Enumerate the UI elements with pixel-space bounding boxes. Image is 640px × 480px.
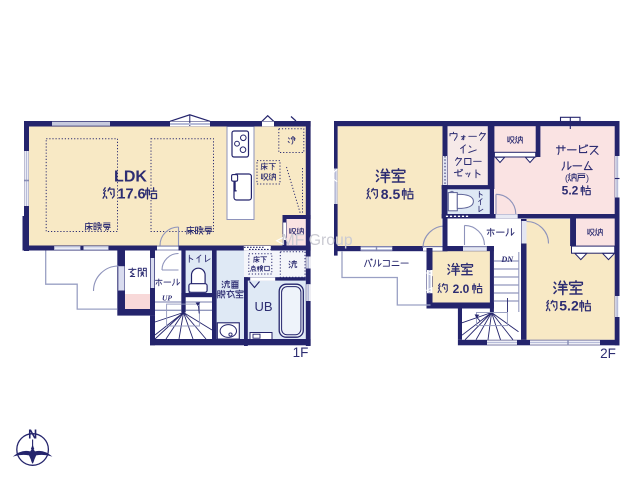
svg-text:2.0: 2.0 <box>453 282 470 296</box>
svg-text:LDK: LDK <box>114 169 147 186</box>
svg-text:N: N <box>28 428 37 442</box>
svg-text:(: ( <box>565 173 568 183</box>
svg-text:5.2: 5.2 <box>562 184 579 198</box>
svg-text:2F: 2F <box>600 346 616 361</box>
svg-text:8.5: 8.5 <box>381 186 401 202</box>
svg-text:): ) <box>586 173 589 183</box>
svg-text:17.6: 17.6 <box>117 186 145 202</box>
svg-text:UP: UP <box>162 293 172 302</box>
svg-text:UB: UB <box>254 299 272 314</box>
svg-text:MF Group: MF Group <box>282 232 353 249</box>
svg-text:1F: 1F <box>293 345 309 360</box>
svg-text:5.2: 5.2 <box>559 298 579 314</box>
svg-text:DN: DN <box>500 255 514 264</box>
